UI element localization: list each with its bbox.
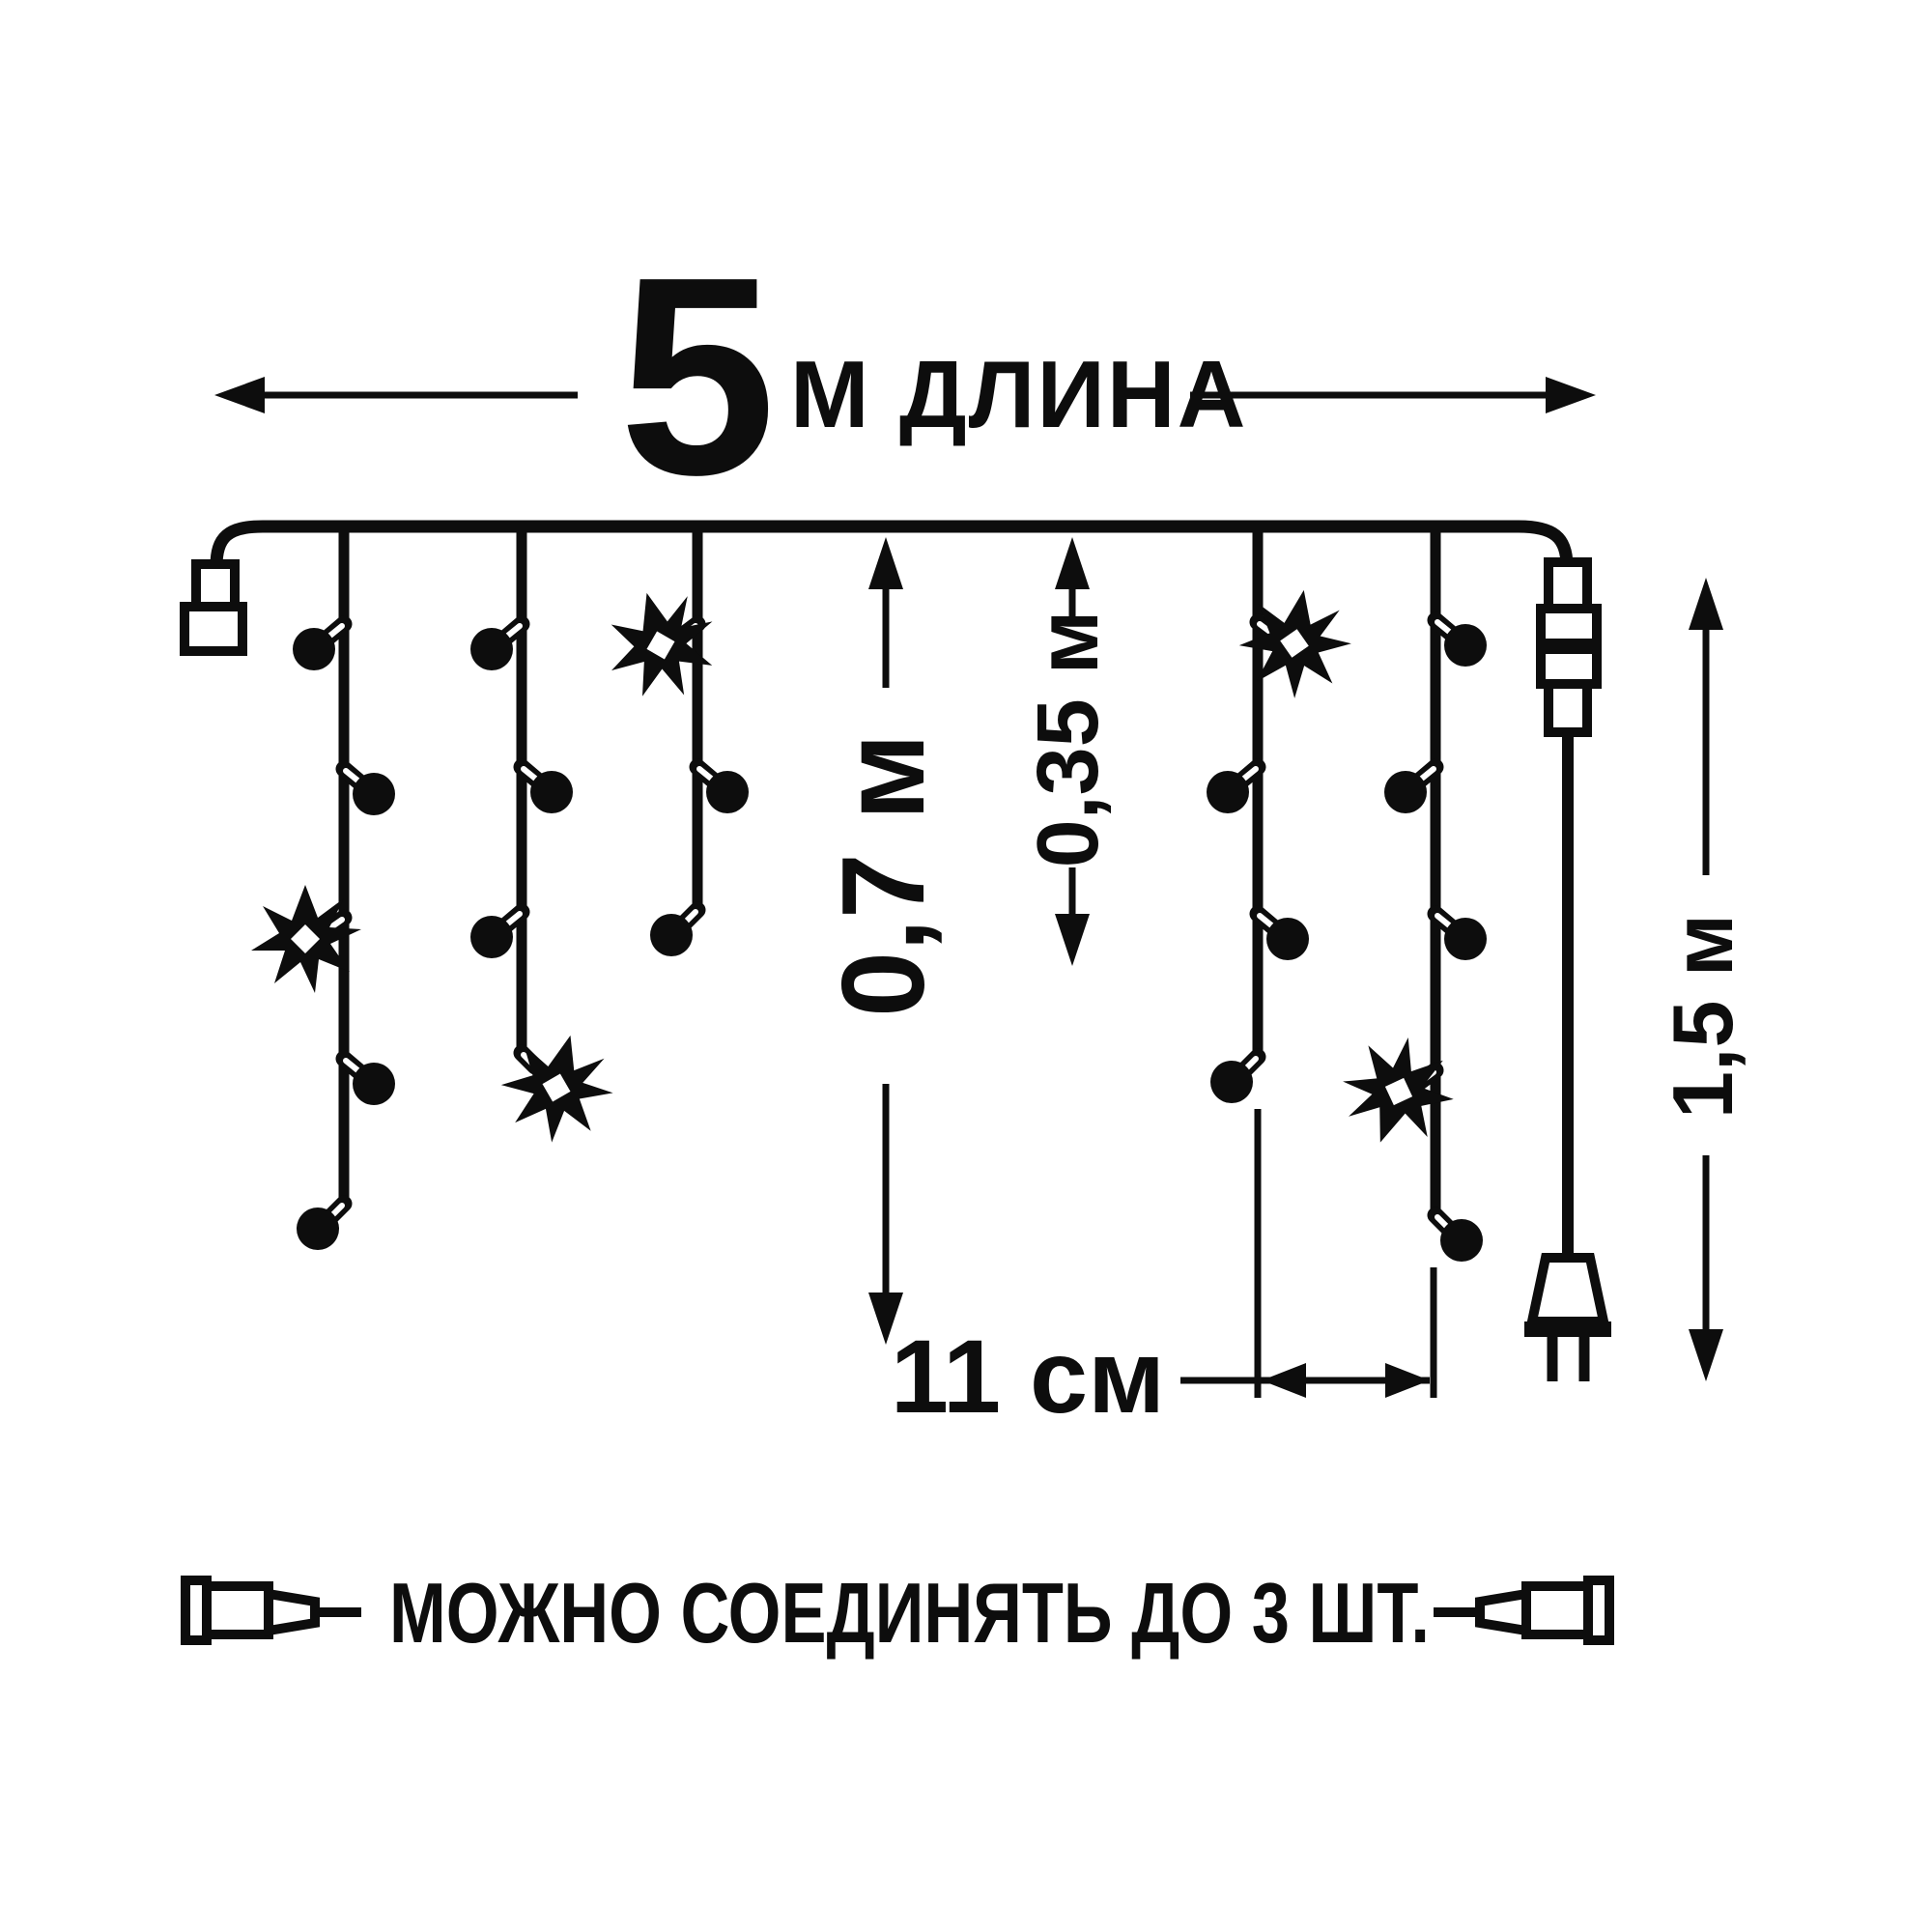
caption-row: МОЖНО СОЕДИНЯТЬ ДО 3 ШТ. [185,1565,1609,1661]
arrowhead-icon [1055,914,1090,966]
bulb-icon [1435,1215,1483,1262]
arrowhead-icon [1385,1363,1430,1398]
bulb-icon [344,1059,395,1105]
drop-wire-3 [594,526,749,956]
drop-wire-1 [251,526,395,1250]
drop-wire-2 [470,526,625,1154]
bulb-icon [1210,1057,1258,1103]
power-lead-dimension: 1,5 м [1655,578,1750,1381]
drop-height-short-label: 0,35 м [1020,611,1117,868]
arrowhead-icon [1689,1329,1723,1381]
bulb-icon [344,769,395,815]
bulb-spacing-dimension: 11 см [891,1109,1434,1435]
arrowhead-icon [868,537,903,589]
bulb-icon [1258,914,1309,960]
total-length-unit-label: м длина [790,341,1247,447]
bulb-spacing-label: 11 см [891,1318,1165,1435]
drop-height-short-dimension: 0,35 м [1020,537,1117,966]
arrowhead-icon [1055,537,1090,589]
bulb-icon [297,1204,344,1250]
power-lead [1524,562,1611,1381]
star-bulb-icon [1327,1022,1467,1161]
total-length-value: 5 [619,218,776,533]
bulb-icon [470,912,522,958]
total-length-dimension: 5 м длина [214,218,1596,533]
caption-text: МОЖНО СОЕДИНЯТЬ ДО 3 ШТ. [389,1565,1430,1661]
arrowhead-icon [1546,377,1596,413]
bulb-icon [697,767,749,813]
bulb-icon [522,767,573,813]
star-bulb-icon [490,1021,624,1154]
female-connector-icon [1434,1580,1609,1640]
arrowhead-icon [1262,1363,1306,1398]
arrowhead-icon [1689,578,1723,630]
drop-wire-5 [1327,526,1487,1262]
power-plug-icon [1524,1258,1611,1381]
garland-dimension-diagram: 5 м длина [0,0,1932,1932]
drop-height-long-label: 0,7 м [817,733,949,1017]
bulb-icon [1384,767,1435,813]
bulb-icon [1435,914,1487,960]
bulb-icon [293,624,344,670]
inline-connector-icon [1541,562,1597,732]
bulb-icon [1207,767,1258,813]
bulb-icon [1435,620,1487,667]
arrowhead-icon [214,377,265,413]
power-lead-length-label: 1,5 м [1655,914,1750,1119]
bulb-icon [470,624,522,670]
star-bulb-icon [594,579,728,712]
end-connector-icon [185,564,242,651]
star-bulb-icon [1232,581,1359,706]
drop-wire-4 [1207,526,1359,1103]
bulb-icon [650,910,697,956]
male-connector-icon [185,1580,361,1640]
drop-height-long-dimension: 0,7 м [817,537,949,1345]
